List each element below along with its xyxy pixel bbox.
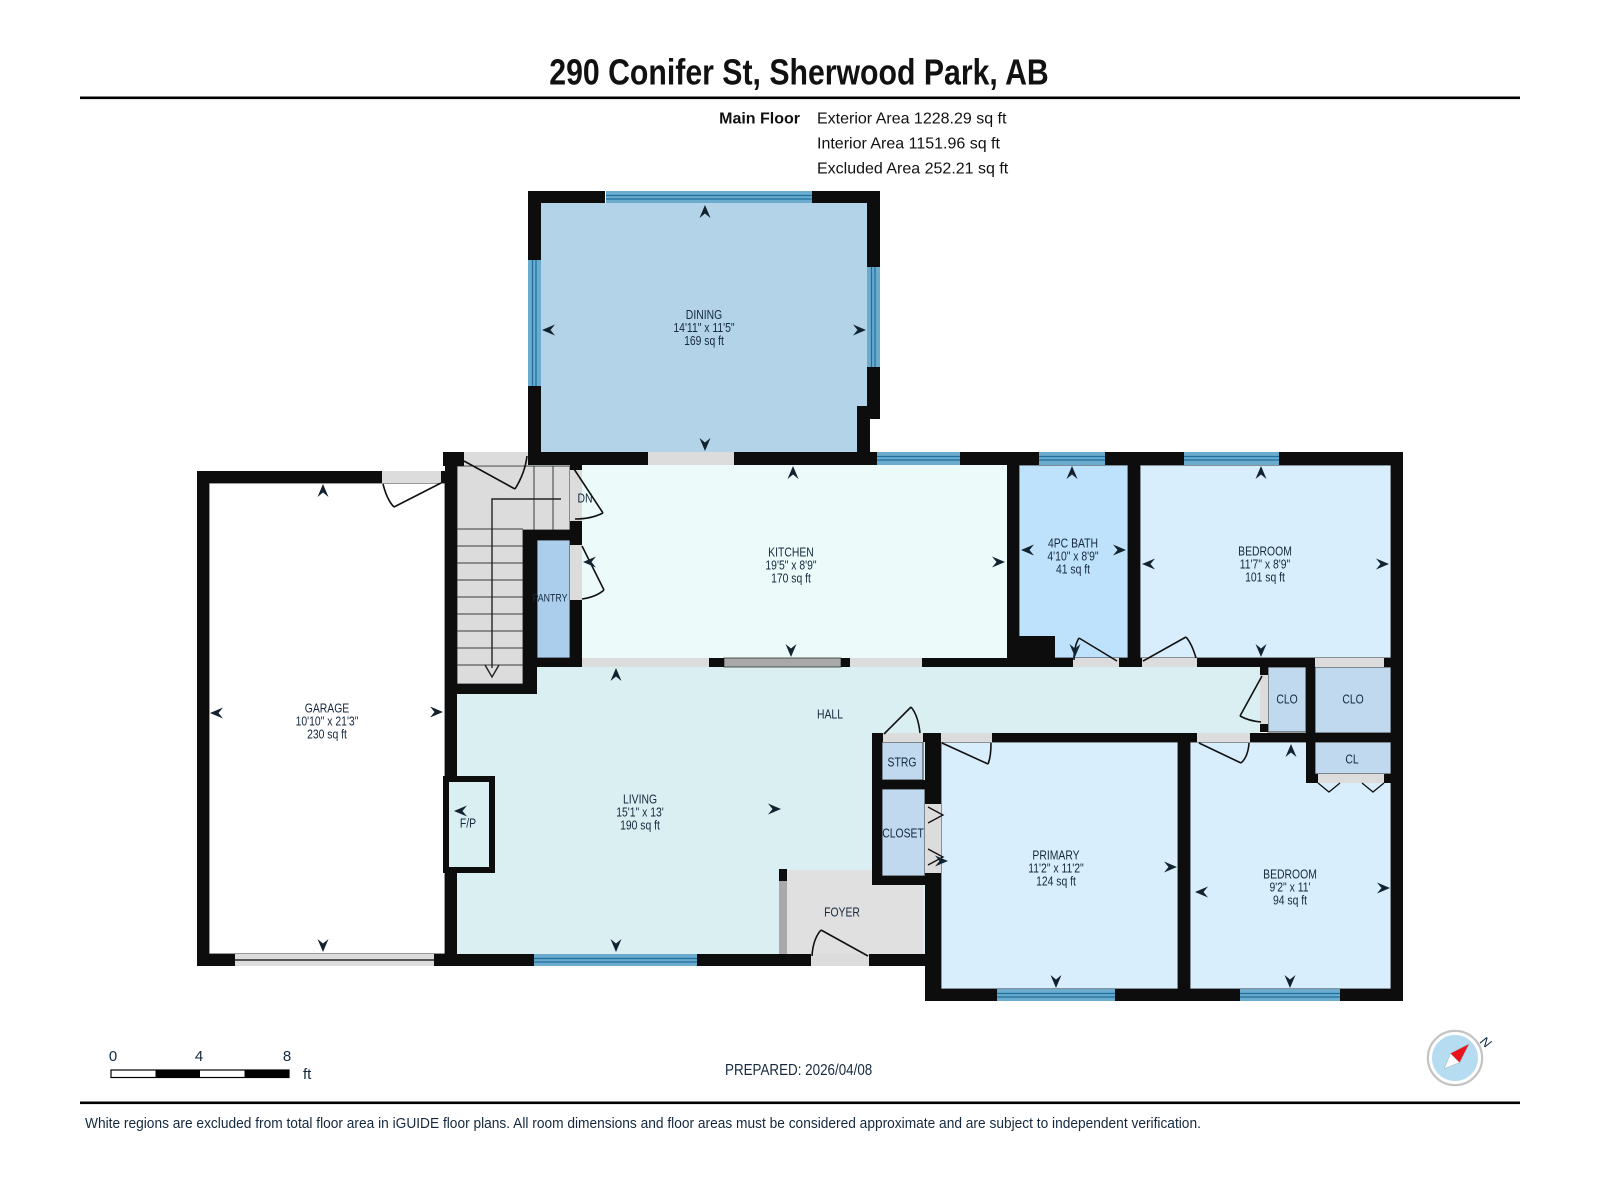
svg-text:ft: ft (303, 1066, 312, 1083)
svg-text:124 sq ft: 124 sq ft (1036, 874, 1077, 888)
svg-text:STRG: STRG (888, 755, 917, 769)
svg-text:CLO: CLO (1276, 692, 1297, 706)
svg-text:DN: DN (577, 491, 592, 505)
svg-text:101 sq ft: 101 sq ft (1245, 570, 1286, 584)
svg-text:PANTRY: PANTRY (533, 593, 568, 605)
svg-text:170 sq ft: 170 sq ft (771, 571, 812, 585)
svg-text:PREPARED: 2026/04/08: PREPARED: 2026/04/08 (725, 1062, 872, 1079)
svg-text:0: 0 (109, 1048, 117, 1065)
svg-text:230 sq ft: 230 sq ft (307, 727, 348, 741)
svg-text:8: 8 (283, 1048, 291, 1065)
svg-text:F/P: F/P (460, 816, 476, 830)
svg-text:41 sq ft: 41 sq ft (1056, 562, 1091, 576)
svg-text:Excluded Area 252.21 sq ft: Excluded Area 252.21 sq ft (817, 161, 1009, 178)
svg-text:White regions are excluded fro: White regions are excluded from total fl… (85, 1115, 1201, 1132)
svg-text:190 sq ft: 190 sq ft (620, 818, 661, 832)
svg-text:290 Conifer St, Sherwood Park,: 290 Conifer St, Sherwood Park, AB (549, 53, 1048, 93)
svg-text:4: 4 (195, 1048, 203, 1065)
svg-text:169 sq ft: 169 sq ft (684, 334, 725, 348)
svg-text:Exterior Area 1228.29 sq ft: Exterior Area 1228.29 sq ft (817, 111, 1007, 128)
svg-text:CL: CL (1345, 752, 1359, 766)
svg-text:94 sq ft: 94 sq ft (1273, 893, 1308, 907)
svg-text:FOYER: FOYER (824, 905, 860, 919)
svg-text:Interior Area 1151.96 sq ft: Interior Area 1151.96 sq ft (817, 136, 1000, 153)
svg-text:Main Floor: Main Floor (719, 111, 800, 128)
svg-text:HALL: HALL (817, 707, 843, 721)
svg-text:CLOSET: CLOSET (882, 826, 924, 840)
svg-text:CLO: CLO (1342, 692, 1363, 706)
